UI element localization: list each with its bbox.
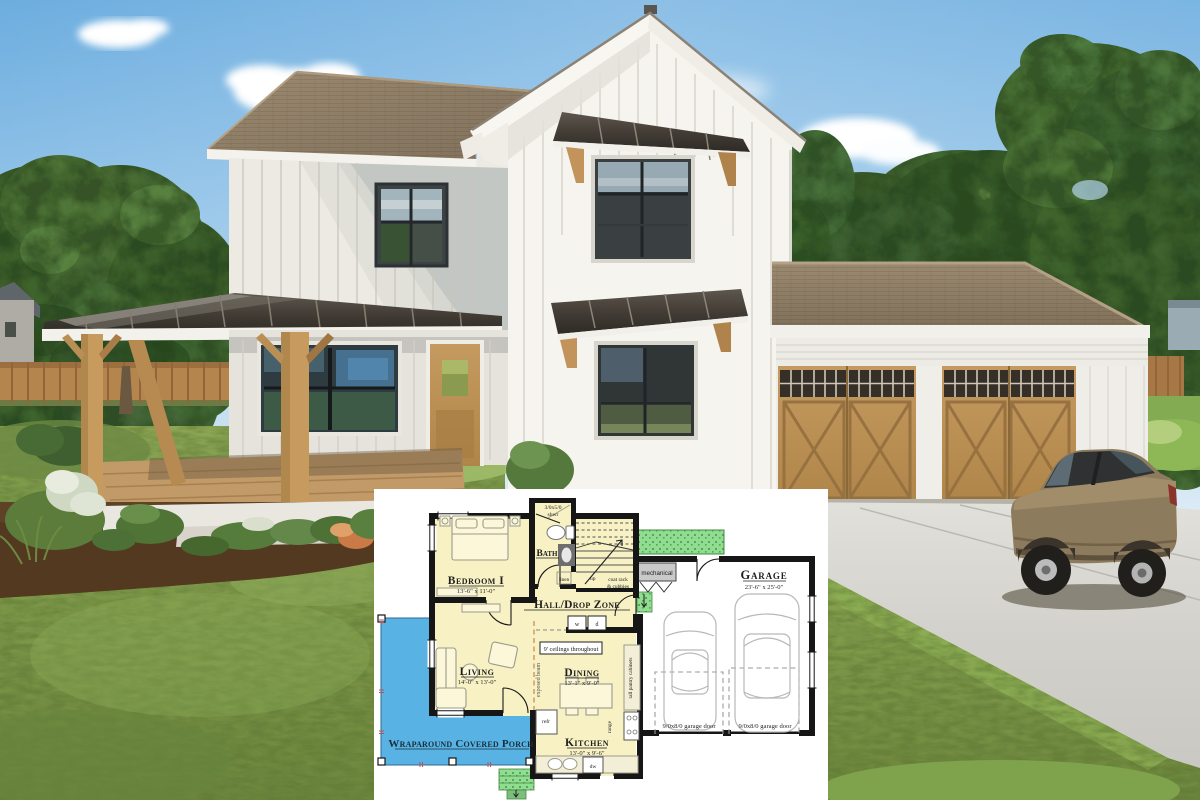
svg-text:linen: linen bbox=[559, 577, 570, 583]
svg-text:Hall/Drop Zone: Hall/Drop Zone bbox=[534, 599, 620, 611]
svg-text:up: up bbox=[590, 576, 596, 582]
svg-text:Bedroom I: Bedroom I bbox=[448, 575, 504, 587]
svg-text:3/0x5/0: 3/0x5/0 bbox=[544, 505, 561, 511]
svg-text:9/0x8/0 garage door: 9/0x8/0 garage door bbox=[662, 723, 716, 730]
svg-text:13'-1" x 9'-0": 13'-1" x 9'-0" bbox=[564, 680, 600, 687]
svg-text:d: d bbox=[596, 622, 599, 628]
svg-text:w: w bbox=[575, 622, 580, 628]
svg-text:Kitchen: Kitchen bbox=[565, 737, 609, 749]
svg-text:coat rack: coat rack bbox=[608, 577, 628, 583]
svg-text:14'-0" x 13'-0": 14'-0" x 13'-0" bbox=[458, 679, 497, 686]
svg-text:mechanical: mechanical bbox=[641, 570, 672, 577]
svg-text:Dining: Dining bbox=[564, 667, 599, 679]
svg-text:dw: dw bbox=[590, 764, 598, 770]
svg-text:13'-6" x 11'-0": 13'-6" x 11'-0" bbox=[457, 588, 496, 595]
svg-text:exposed beam: exposed beam bbox=[536, 663, 542, 697]
svg-text:& cubbies: & cubbies bbox=[607, 584, 629, 590]
svg-text:shwr: shwr bbox=[548, 512, 559, 518]
svg-text:9/0x8/0 garage door: 9/0x8/0 garage door bbox=[738, 723, 792, 730]
svg-text:13'-0" x 9'-6": 13'-0" x 9'-6" bbox=[569, 750, 605, 757]
svg-text:Living: Living bbox=[460, 666, 495, 678]
svg-text:23'-6" x 25'-0": 23'-6" x 25'-0" bbox=[745, 584, 784, 591]
svg-text:Bath: Bath bbox=[537, 549, 559, 559]
svg-text:9' ceilings throughout: 9' ceilings throughout bbox=[544, 646, 599, 653]
svg-text:range: range bbox=[607, 720, 613, 733]
svg-text:refr: refr bbox=[542, 718, 550, 725]
svg-text:Garage: Garage bbox=[740, 568, 787, 582]
svg-text:tall pantry cabinets: tall pantry cabinets bbox=[628, 657, 634, 698]
svg-text:Wraparound Covered Porch: Wraparound Covered Porch bbox=[388, 738, 534, 750]
